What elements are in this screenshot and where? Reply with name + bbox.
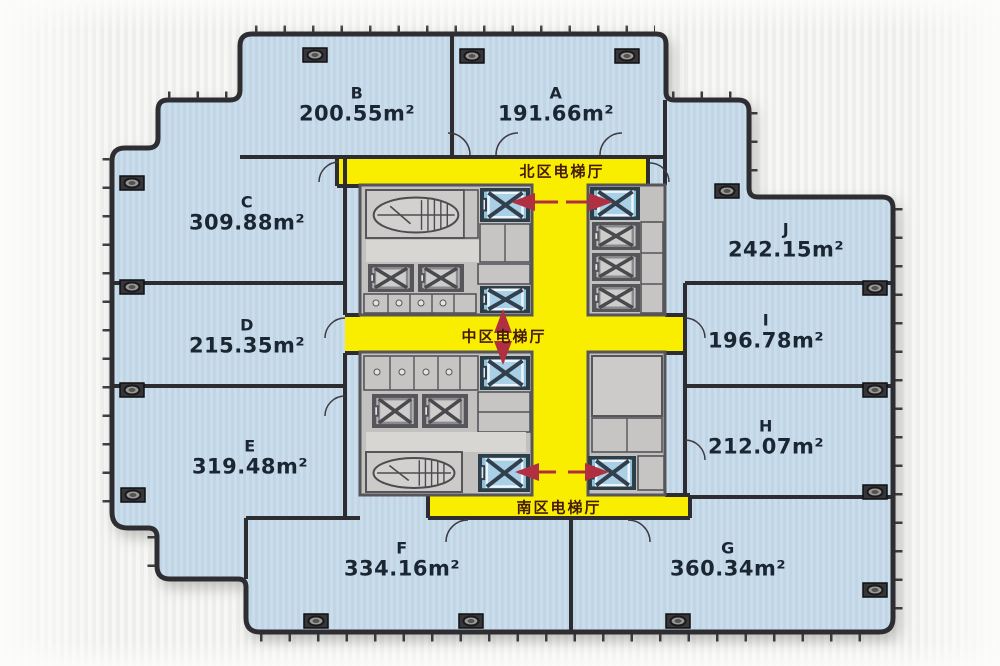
staircase-icon	[374, 198, 459, 233]
column-marker-icon	[666, 614, 690, 628]
elevator-shaft-icon	[373, 395, 416, 427]
column-marker-icon	[459, 614, 483, 628]
elevator-car-icon	[481, 287, 529, 313]
column-marker-icon	[120, 383, 144, 397]
column-marker-icon	[863, 383, 887, 397]
column-marker-icon	[303, 48, 327, 62]
column-marker-icon	[120, 176, 144, 190]
column-marker-icon	[615, 49, 639, 63]
core-south-block	[360, 352, 532, 495]
column-marker-icon	[120, 280, 144, 294]
elevator-shaft-icon	[419, 265, 462, 291]
core-north-block	[360, 185, 532, 315]
elevator-shaft-icon	[369, 265, 412, 291]
elevator-car-icon	[481, 357, 529, 390]
south-corridor	[428, 496, 690, 518]
elevator-shaft-icon	[593, 285, 638, 311]
north-corridor	[337, 159, 648, 186]
core-east-bank-upper	[588, 185, 665, 315]
column-marker-icon	[863, 281, 887, 295]
column-marker-icon	[121, 488, 145, 502]
staircase-icon	[374, 458, 455, 488]
column-marker-icon	[304, 614, 328, 628]
elevator-shaft-icon	[593, 254, 638, 280]
elevator-shaft-icon	[593, 223, 638, 249]
elevator-car-icon	[481, 189, 529, 222]
central-corridor	[345, 315, 685, 353]
column-marker-icon	[715, 184, 739, 198]
elevator-shaft-icon	[423, 395, 466, 427]
column-marker-icon	[863, 485, 887, 499]
core-east-bank-lower	[588, 352, 665, 495]
column-marker-icon	[460, 49, 484, 63]
floor-plan: B 200.55m² A 191.66m² C 309.88m² D 215.3…	[0, 0, 1000, 666]
column-marker-icon	[863, 583, 887, 597]
floor-plan-canvas	[0, 0, 1000, 666]
